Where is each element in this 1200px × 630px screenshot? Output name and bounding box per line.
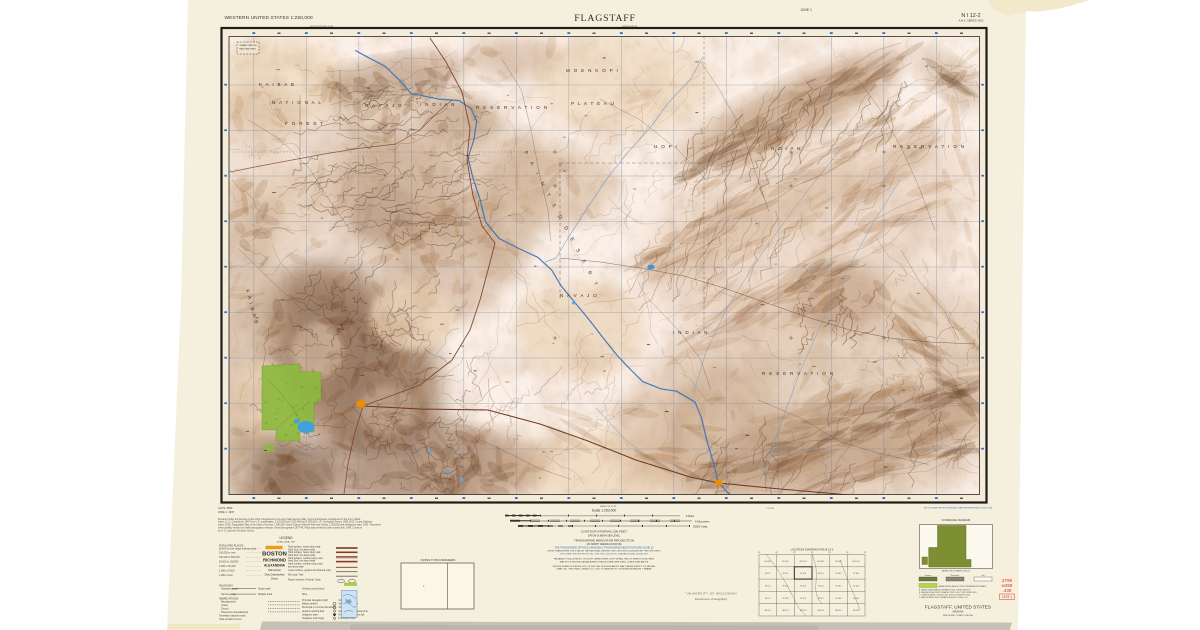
svg-text:NI 13-9: NI 13-9 [853,598,859,600]
svg-text:Total elevation in feet: Total elevation in feet [219,618,242,621]
svg-text:NH 12-2: NH 12-2 [782,610,788,612]
svg-text:MAP IS IT'S SHOWN CAN AN AGENC: MAP IS IT'S SHOWN CAN AN AGENCY FALLEST … [560,560,649,563]
svg-text:RELIABILITY BULLETIN NO. ITS S: RELIABILITY BULLETIN NO. ITS SORT TERRIT… [554,558,655,561]
svg-text:R E S E R V A T I O N: R E S E R V A T I O N [893,144,965,149]
svg-text:RICHMOND: RICHMOND [263,558,286,563]
svg-text:P L A T E A U: P L A T E A U [571,101,615,106]
svg-text:NI 13-7: NI 13-7 [818,598,824,600]
svg-text:112: 112 [811,552,814,554]
svg-text:THE THOUSAND METER UNIVERSAL T: THE THOUSAND METER UNIVERSAL TRANSVERSE … [924,507,993,510]
svg-text:I N D I A N: I N D I A N [673,330,709,335]
svg-text:D: MAPS STEREO-PHOTOGRAPHY A: D: MAPS STEREO-PHOTOGRAPHY A 10000 X 250… [919,596,968,599]
svg-text:1:: 1: [423,585,425,588]
svg-text:Olds Chamberlain: Olds Chamberlain [264,573,285,576]
svg-text:Standard gauge: Standard gauge [221,587,239,590]
svg-text:JUNE 1, 1947: JUNE 1, 1947 [218,510,235,514]
svg-text:Dirt road, Trail: Dirt road, Trail [288,574,303,577]
svg-text:Municipal or commercial airfie: Municipal or commercial airfield [302,606,336,609]
svg-text:1,000 to 5,000: 1,000 to 5,000 [219,570,235,573]
svg-text:ington, D. C. Compiled in 194: ington, D. C. Compiled in 1947 from U.S.… [218,521,373,524]
svg-text:5,000 to 50,000: 5,000 to 50,000 [219,565,236,568]
svg-text:Military airfield: Military airfield [302,603,318,606]
svg-text:WESTERN UNITED STATES 1:250,00: WESTERN UNITED STATES 1:250,000 [225,15,313,21]
svg-text:1,000 or less: 1,000 or less [219,574,233,577]
svg-text:NOTES TO BOOKMAKERS: NOTES TO BOOKMAKERS [421,558,456,562]
svg-text:NI 13-2: NI 13-2 [836,573,842,575]
svg-text:N A T I O N A L: N A T I O N A L [272,100,322,105]
svg-text:100,000 to 500,000: 100,000 to 500,000 [219,556,240,559]
svg-text:50,000 to 100,000: 50,000 to 100,000 [219,561,239,564]
svg-text:sheet partially revised on aer: sheet partially revised on aerial photog… [218,527,363,530]
svg-text:BITTER SPRINGS 25 MI.: BITTER SPRINGS 25 MI. [310,26,334,28]
svg-text:NJ 13-12: NJ 13-12 [853,561,860,563]
svg-text:FLAGSTAFF: FLAGSTAFF [574,13,635,24]
svg-text:N I 12-2: N I 12-2 [961,13,980,19]
svg-text:7.70 90: 7.70 90 [766,508,774,510]
svg-text:ALEXANDRIA: ALEXANDRIA [264,564,286,568]
svg-text:Scale 1:250,000: Scale 1:250,000 [592,509,617,513]
svg-text:DATUM IS MEAN SEA LEVEL: DATUM IS MEAN SEA LEVEL [588,534,621,537]
svg-text:50,000 or over (large built-up: 50,000 or over (large built-up area) [219,548,256,551]
svg-text:Multiple track: Multiple track [258,593,273,596]
svg-text:JUNE 1: JUNE 1 [800,8,812,12]
svg-text:NI 12-4: NI 12-4 [765,586,771,588]
svg-text:N A V A J O: N A V A J O [365,103,403,108]
svg-text:COVERAGE DIAGRAM: COVERAGE DIAGRAM [942,518,971,522]
svg-text:Seaplane anchorage: Seaplane anchorage [302,617,325,620]
svg-text:Prepared under the direction o: Prepared under the direction of the Chie… [218,518,361,521]
svg-text:NI 13-6: NI 13-6 [853,586,859,588]
svg-text:112: 112 [828,552,831,554]
svg-text:NJ 13-10: NJ 13-10 [817,561,824,563]
svg-text:KAYENTA 48 MI.: KAYENTA 48 MI. [622,25,638,28]
svg-text:CONTOUR INTERVAL 200 FEET: CONTOUR INTERVAL 200 FEET [581,530,627,534]
svg-text:Loose surface, graded and drai: Loose surface, graded and drained road [288,569,331,572]
svg-text:LOCATION DIAGRAM FOR NI 12-2: LOCATION DIAGRAM FOR NI 12-2 [791,548,834,552]
svg-text:AERIAL PHOTOGRAPHY 1936-47: AERIAL PHOTOGRAPHY 1936-47 [942,570,970,573]
svg-text:FLAGSTAFF, UNITED STATES: FLAGSTAFF, UNITED STATES [925,605,991,610]
svg-text:SHOW TRANSVERSE UTILS VALUE TH: SHOW TRANSVERSE UTILS VALUE THE NATIONAL… [547,550,661,553]
svg-text:.439: .439 [1003,588,1012,593]
svg-text:DELETE STARS OF PRICES OUT OF: DELETE STARS OF PRICES OUT OF THE THE 10… [553,565,656,568]
svg-text:NATIONAL PARK: NATIONAL PARK [240,47,257,50]
svg-text:WINSLOW 15 MI.: WINSLOW 15 MI. [600,506,617,508]
svg-text:112: 112 [846,552,849,554]
svg-text:NI 12-8: NI 12-8 [783,598,789,600]
svg-text:maps, 1933; Topographic Map of: maps, 1933; Topographic Map of the State… [218,524,382,527]
svg-text:R E S E R V A T I O N: R E S E R V A T I O N [762,371,834,376]
svg-text:ARIZONA: ARIZONA [953,611,964,614]
svg-text:F O R E S T: F O R E S T [285,121,324,126]
svg-text:NI 12-6: NI 12-6 [800,586,806,588]
svg-text:1978 1: 1978 1 [1002,595,1012,599]
svg-text:NH 13-3: NH 13-3 [853,610,859,612]
svg-text:THIS SHEET FROM PROTECTED THE: THIS SHEET FROM PROTECTED THE THIS 1000-… [560,553,649,556]
svg-text:two lanes wide: two lanes wide [288,565,304,568]
svg-text:"UNIVERSITY OF WISCONSIN: "UNIVERSITY OF WISCONSIN [685,592,737,596]
svg-text:NI 13-4: NI 13-4 [818,586,824,588]
svg-text:Vertical control (elev): Vertical control (elev) [302,587,325,590]
svg-text:Seaplane base: Seaplane base [302,613,319,616]
svg-text:Warrenton: Warrenton [268,568,281,572]
svg-text:H O P I: H O P I [654,144,678,149]
svg-text:THE TRANSVERSE ORTHOS UNIVERSA: THE TRANSVERSE ORTHOS UNIVERSAL TRANSVER… [554,547,654,550]
svg-text:NI 12-9: NI 12-9 [800,598,806,600]
svg-text:LEGEND: LEGEND [279,536,293,540]
svg-text:by U. S. local and Geodetic Su: by U. S. local and Geodetic Survey. [218,529,255,532]
svg-text:25000 Yards: 25000 Yards [693,525,708,529]
svg-text:5 Miles: 5 Miles [686,514,695,518]
svg-text:112: 112 [758,552,761,554]
svg-text:8 Kilometers: 8 Kilometers [695,519,710,523]
svg-text:City: City [981,574,984,577]
svg-text:A.M.S. SERIES V502: A.M.S. SERIES V502 [959,19,984,23]
svg-text:A.M.S. 2550: A.M.S. 2550 [218,506,233,510]
svg-text:Principal navigation light: Principal navigation light [302,599,328,602]
svg-text:NJ 12-12: NJ 12-12 [800,561,807,563]
svg-text:ROAD DATA, 1947: ROAD DATA, 1947 [277,541,296,544]
svg-text:NI 12-3: NI 12-3 [800,573,806,575]
svg-text:Department of Geography: Department of Geography [695,597,728,601]
svg-text:Contours: Contours [924,574,931,577]
svg-text:NH 12-1: NH 12-1 [765,610,771,612]
svg-text:Narrow gauge: Narrow gauge [221,593,237,596]
svg-text:GRAND CANYON: GRAND CANYON [240,44,257,47]
svg-text:NI 12-2: NI 12-2 [783,573,789,575]
svg-text:112: 112 [793,552,796,554]
svg-text:Dexter: Dexter [271,578,278,581]
svg-text:K A I B A B: K A I B A B [259,82,295,87]
svg-text:NI 12-7: NI 12-7 [765,598,771,600]
svg-text:I N D I A N: I N D I A N [766,146,802,151]
svg-text:Paved and macadamized: Paved and macadamized [221,611,249,614]
svg-text:Route numbers, Federal, State: Route numbers, Federal, State [288,579,321,582]
svg-text:TRANSVERSE MERCATOR PROJECTION: TRANSVERSE MERCATOR PROJECTION [574,538,634,542]
svg-text:NH 13-1: NH 13-1 [818,610,824,612]
svg-text:STAR, INC. THE LINES CONTACT U: STAR, INC. THE LINES CONTACT U.T. GUT TO… [557,568,653,571]
svg-text:NI 13-3: NI 13-3 [853,573,859,575]
svg-text:M O E N K O P I: M O E N K O P I [566,68,619,73]
svg-text:NI 13-1: NI 13-1 [818,573,824,575]
svg-text:100,000 or over: 100,000 or over [219,552,236,555]
svg-text:NI 13-8: NI 13-8 [836,598,842,600]
svg-text:NI 13-5: NI 13-5 [836,586,842,588]
svg-text:N29 (W MIC CONE) 1:250,000: N29 (W MIC CONE) 1:250,000 [943,615,974,617]
svg-text:Airplane landing field: Airplane landing field [302,610,325,613]
svg-text:Planimetric: Planimetric [951,574,960,577]
svg-text:NJ 12-10: NJ 12-10 [764,561,771,563]
svg-text:ON NORTH AMERICAN DATUM: ON NORTH AMERICAN DATUM [587,543,622,546]
svg-text:N A V A J O: N A V A J O [560,293,598,298]
svg-text:I N D I A N: I N D I A N [420,102,456,107]
svg-text:Single track: Single track [258,587,271,590]
svg-text:AREAS WITHIN WHICH CONTOURS AR: AREAS WITHIN WHICH CONTOURS ARE APPROXIM… [939,585,987,588]
svg-text:112: 112 [775,552,778,554]
svg-text:NH 13-2: NH 13-2 [835,610,841,612]
svg-text:NJ 12-11: NJ 12-11 [782,561,789,563]
svg-text:R E S E R V A T I O N: R E S E R V A T I O N [476,105,548,110]
svg-text:112: 112 [864,552,867,554]
svg-text:Mine: Mine [302,593,308,596]
svg-text:NI 12-1: NI 12-1 [765,573,771,575]
